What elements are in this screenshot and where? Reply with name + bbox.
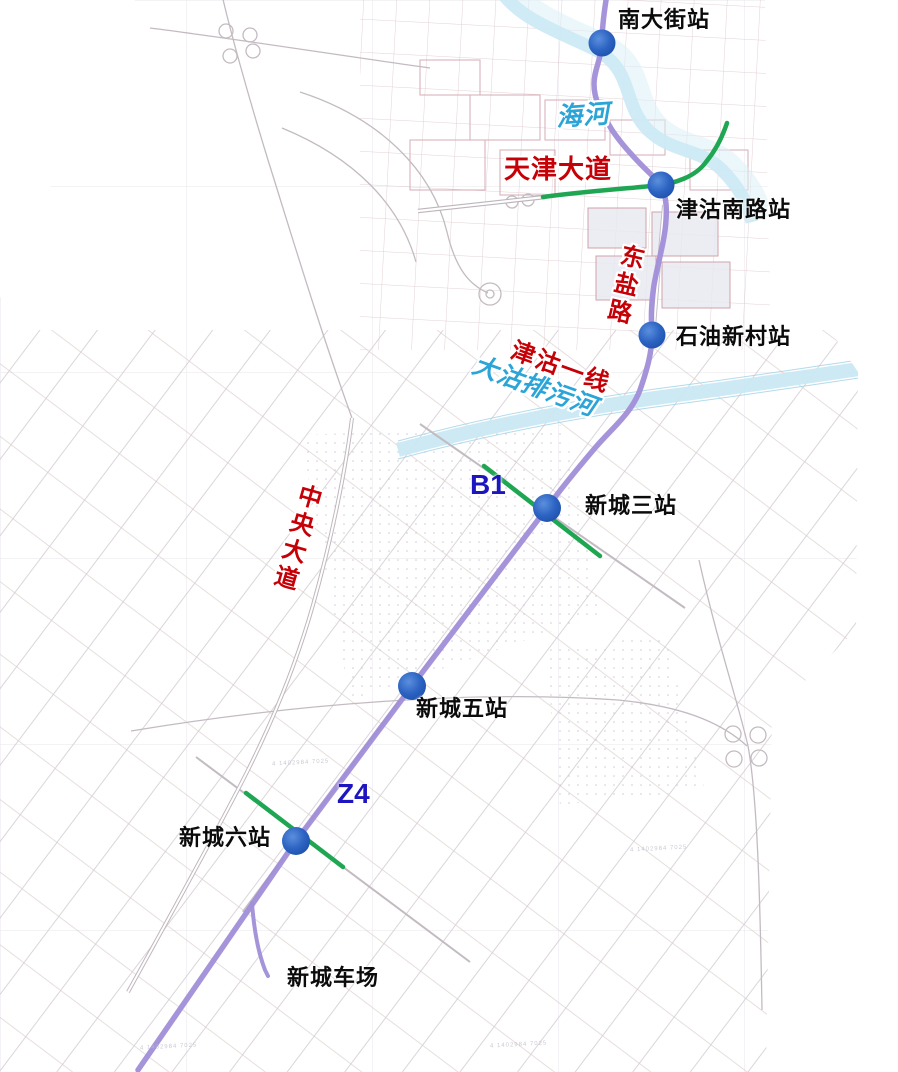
- station-label-shiyouxincun: 石油新村站: [676, 325, 791, 348]
- road-label-tianjin-avenue: 天津大道: [504, 156, 612, 183]
- station-label-xincheng3: 新城三站: [585, 494, 677, 517]
- station-label-xincheng6: 新城六站: [179, 826, 271, 849]
- base-map-canvas: [0, 0, 898, 1072]
- line-code-b1: B1: [470, 470, 506, 499]
- station-label-xincheng5: 新城五站: [416, 697, 508, 720]
- station-dot-xincheng6: [282, 827, 310, 855]
- base-drawing: [0, 0, 898, 1072]
- river-label-haihe: 海河: [555, 100, 611, 131]
- station-label-jingunanlu: 津沽南路站: [676, 198, 791, 221]
- station-dot-xincheng3: [533, 494, 561, 522]
- transit-plan-map: 南大街站 津沽南路站 石油新村站 新城三站 新城五站 新城六站 新城车场 海河 …: [0, 0, 898, 1072]
- station-dot-jingunanlu: [648, 172, 675, 199]
- station-dot-nandajie: [589, 30, 616, 57]
- station-dot-shiyouxincun: [639, 322, 666, 349]
- depot-label-xinchengdepot: 新城车场: [287, 966, 379, 989]
- station-label-nandajie: 南大街站: [618, 8, 710, 31]
- line-code-z4: Z4: [337, 779, 370, 808]
